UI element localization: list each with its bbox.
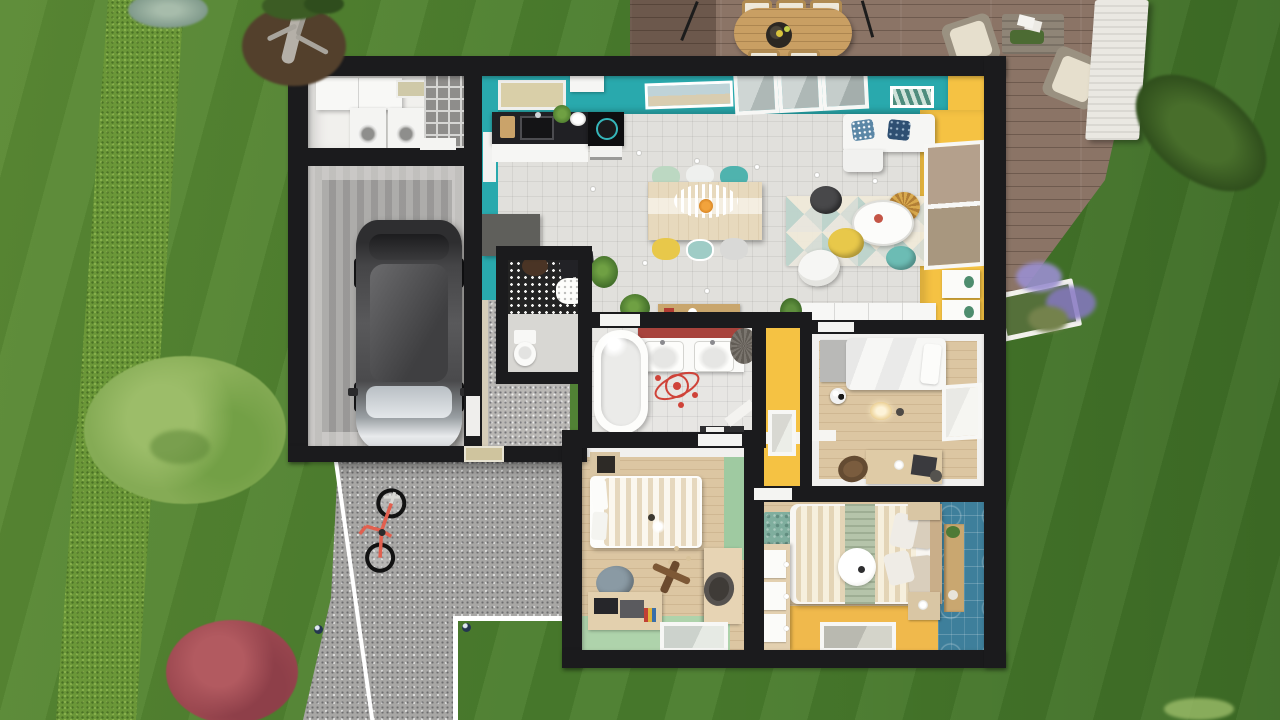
- utility-skylight: [396, 80, 426, 98]
- wall-mint-master-divider: [744, 430, 764, 656]
- flat-window: [820, 622, 896, 652]
- wall-garage-bottom: [288, 446, 587, 462]
- dining-chair-yellow: [652, 238, 680, 260]
- mint-wall-right: [724, 448, 744, 560]
- pot-on-cooktop: [596, 118, 618, 140]
- pendant-center: [699, 199, 713, 213]
- living-picture-window: [924, 140, 984, 270]
- yellow-hallway: [764, 328, 804, 488]
- laptop: [594, 598, 618, 614]
- shelf-item: [948, 590, 958, 600]
- wall-right: [984, 56, 1006, 668]
- fruit: [776, 30, 783, 37]
- front-door: [464, 446, 504, 462]
- sink-faucet: [535, 112, 541, 118]
- cutting-board: [500, 116, 515, 138]
- kitchen-window: [498, 80, 566, 110]
- wall-art-green: [890, 86, 934, 108]
- dark-pouf: [810, 186, 842, 214]
- dryer: [388, 108, 424, 148]
- wall-top: [288, 56, 1006, 76]
- car: [356, 220, 462, 450]
- lavender: [1028, 306, 1068, 332]
- door-kid1: [818, 322, 854, 332]
- spotlight: [642, 260, 648, 266]
- nightstand-lamp: [918, 600, 928, 610]
- spotlight: [754, 164, 760, 170]
- bed-pillow: [591, 479, 609, 510]
- spotlight: [814, 172, 820, 178]
- curb-notch-v: [453, 616, 458, 720]
- dryer-door: [396, 124, 416, 144]
- faucet: [710, 340, 715, 345]
- dining-chair-gray: [720, 238, 748, 260]
- drawer-knob: [784, 594, 789, 599]
- tree-shadow-patch: [150, 430, 210, 464]
- door-utility: [420, 138, 456, 150]
- fruit: [784, 26, 790, 32]
- wall-wc-bottom: [496, 372, 592, 384]
- flat-window: [660, 622, 728, 652]
- duvet-button: [648, 514, 655, 521]
- washer: [350, 108, 386, 148]
- bed-pillow: [591, 512, 608, 541]
- lavender: [1016, 262, 1062, 292]
- wall-bottom: [562, 650, 1006, 668]
- oven: [590, 146, 622, 160]
- desk-plant: [930, 470, 942, 482]
- star-decal: [668, 560, 672, 564]
- drawer-console: [942, 270, 980, 298]
- spotlight: [636, 150, 642, 156]
- desk-lamp: [894, 460, 904, 470]
- teal-pouf: [886, 246, 916, 270]
- floor-plan-render: [0, 0, 1280, 720]
- grass-tuft: [1164, 698, 1234, 720]
- wall-kid1-left: [800, 322, 812, 498]
- counter-cabinet: [492, 144, 588, 162]
- path-light: [462, 623, 471, 632]
- soccer-ball: [830, 388, 846, 404]
- door-mint-bedroom: [698, 434, 742, 446]
- console-leaf-art: [964, 276, 974, 288]
- potted-plant: [590, 256, 618, 288]
- sofa-pillow-navy: [887, 119, 911, 141]
- wall-utility-divider: [288, 148, 478, 166]
- pencil-cup: [644, 608, 656, 622]
- spotlight: [704, 288, 710, 294]
- utility-wall-cabinet: [316, 78, 402, 110]
- star-decal: [674, 546, 679, 551]
- table-plants: [1010, 30, 1044, 44]
- lamp-dot: [858, 566, 865, 573]
- faucet: [660, 340, 665, 345]
- spotlight: [694, 158, 700, 164]
- sofa-pillow-pattern: [851, 119, 876, 142]
- wall-left: [288, 56, 308, 462]
- car-rear-window: [369, 234, 449, 260]
- ceiling-light-glow: [600, 330, 628, 358]
- floor-knob: [896, 408, 904, 416]
- door-master: [754, 488, 792, 500]
- sofa-chaise: [843, 150, 883, 172]
- striped-duvet: [604, 478, 700, 546]
- driveway-shadow: [338, 462, 588, 478]
- dining-chair-mint2: [686, 239, 714, 261]
- car-roof: [370, 264, 448, 382]
- plate-stack: [570, 112, 586, 126]
- ceiling-lamp: [652, 520, 665, 533]
- kitchen-sink: [520, 116, 554, 140]
- spotlight: [872, 178, 878, 184]
- wall-bedblock-left: [562, 430, 582, 668]
- door-hall-garage: [466, 396, 480, 436]
- kid1-window: [942, 383, 982, 442]
- nightstand-items: [597, 456, 615, 473]
- red-bush: [166, 620, 298, 720]
- deck-dark-section: [630, 0, 716, 64]
- drawer-knob: [784, 562, 789, 567]
- wall-wc-left: [496, 246, 508, 380]
- drawer-knob: [784, 626, 789, 631]
- toilet-bowl: [514, 342, 536, 366]
- wall-art-beach: [645, 80, 734, 109]
- atom-floor-decal: [648, 360, 706, 412]
- washer-door: [358, 124, 378, 144]
- ceiling-lamp: [870, 402, 892, 420]
- shelf-plant: [946, 526, 960, 538]
- counter-plant: [553, 105, 571, 123]
- console-leaf-art: [964, 306, 974, 318]
- hallway-window: [768, 410, 796, 456]
- round-ceiling-lamp: [838, 548, 876, 586]
- headboard-cabinet: [820, 340, 848, 382]
- car-windshield: [366, 386, 452, 418]
- star-decal: [686, 556, 691, 561]
- spotlight: [590, 186, 596, 192]
- door-bathroom: [600, 314, 640, 326]
- wall-bath-right: [752, 312, 766, 448]
- table-deco: [874, 214, 883, 223]
- car-mirror: [348, 388, 358, 396]
- wall-wc-right: [578, 246, 592, 446]
- path-light: [314, 625, 323, 634]
- desk-device: [620, 600, 644, 618]
